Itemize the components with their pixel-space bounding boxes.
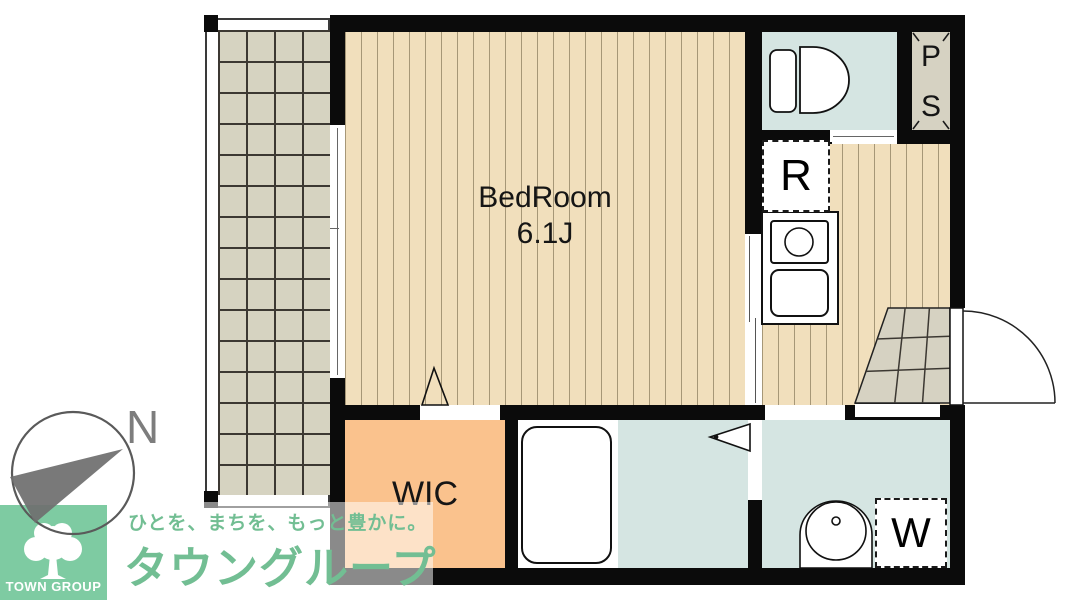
toilet-door-opening: [830, 130, 897, 142]
wall-wic-bath: [505, 420, 518, 568]
ps-letter-p: P: [921, 40, 941, 74]
balcony-tiles: [218, 30, 330, 495]
brand-company: タウングループ: [124, 532, 436, 596]
wic-door-opening: [420, 405, 500, 420]
brand-company-text: タウングループ: [124, 544, 436, 593]
wall-ps-bottom: [897, 130, 950, 144]
compass-n: N: [126, 400, 159, 454]
kitchen-sliding-door: [745, 234, 762, 405]
bath-floor: [618, 420, 748, 568]
bedroom-balcony-window: [330, 125, 345, 378]
wall-right-upper: [950, 15, 965, 308]
bath-door-opening: [748, 420, 762, 500]
badge-text: TOWN GROUP: [6, 579, 102, 594]
bath-floor-white: [518, 420, 618, 568]
entrance-step: [855, 403, 940, 417]
ps-label: P S: [912, 40, 950, 124]
brand-badge: TOWN GROUP: [0, 505, 107, 600]
washroom-door-opening: [765, 405, 845, 420]
washing-machine-space: W: [875, 498, 947, 568]
bedroom-name: BedRoom: [478, 180, 611, 216]
wall-toilet-ps: [897, 32, 912, 130]
entrance-door: [950, 308, 1055, 405]
toilet-floor: [762, 32, 897, 130]
brand-tagline-text: ひとを、まちを、もっと豊かに。: [128, 513, 427, 534]
wall-bedroom-bottom: [345, 405, 755, 420]
balcony-corner-top: [204, 15, 218, 32]
bedroom-area: 6.1J: [517, 216, 574, 252]
floorplan-page: R W BedRoom 6.1J WIC P S TOWN GROUP: [0, 0, 1070, 600]
bedroom-label: BedRoom 6.1J: [430, 180, 660, 252]
refrigerator-label: R: [780, 151, 812, 201]
refrigerator-space: R: [762, 140, 830, 212]
washer-label: W: [891, 509, 931, 557]
wall-right-lower: [950, 405, 965, 585]
brand-tagline: ひとを、まちを、もっと豊かに。: [128, 508, 427, 535]
wall-bedroom-right: [745, 32, 762, 234]
ps-letter-s: S: [921, 90, 941, 124]
wall-top: [330, 15, 965, 32]
compass-n-text: N: [126, 401, 159, 453]
